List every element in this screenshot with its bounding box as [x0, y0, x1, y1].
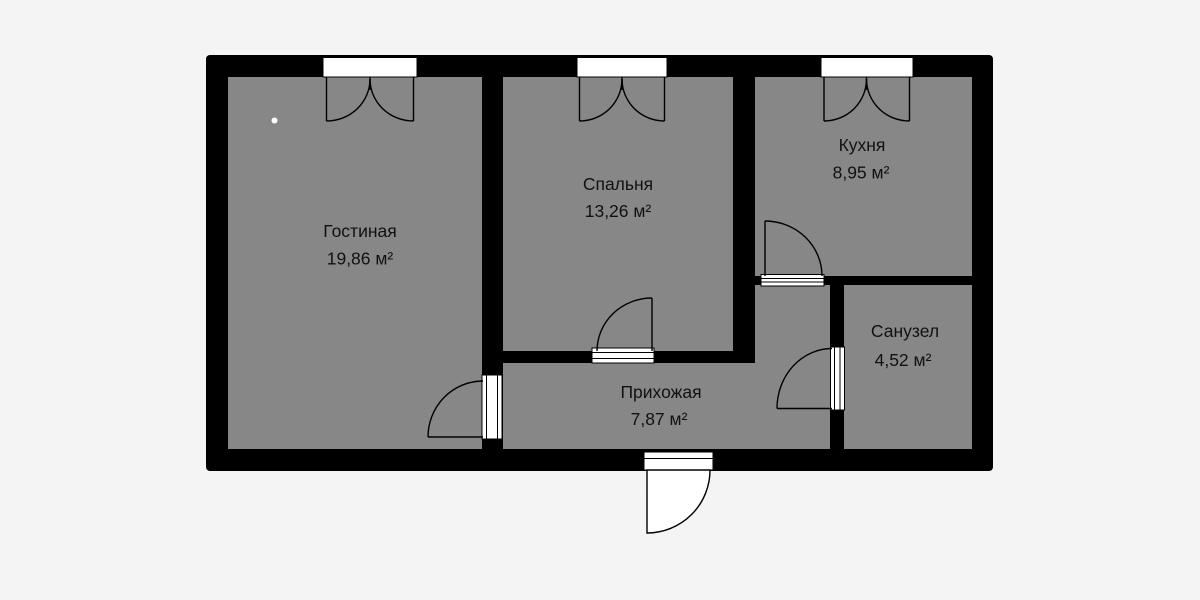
floor-plan-canvas: Гостиная 19,86 м² Спальня 13,26 м² Кухня… [0, 0, 1200, 600]
living-room-name: Гостиная [323, 221, 396, 241]
plan-marker-dot [272, 118, 278, 124]
bedroom-name: Спальня [583, 174, 653, 194]
doorway-kitchen [761, 275, 824, 287]
hallway-area: 7,87 м² [631, 409, 688, 429]
doorway-bedroom [592, 348, 654, 363]
bathroom-name: Санузел [871, 321, 939, 341]
doorway-living-room [482, 375, 502, 439]
kitchen-name: Кухня [839, 135, 886, 155]
living-room-area: 19,86 м² [327, 249, 394, 269]
doorway-bathroom [831, 347, 845, 410]
bedroom-area: 13,26 м² [585, 201, 652, 221]
floor-plan: Гостиная 19,86 м² Спальня 13,26 м² Кухня… [0, 0, 1200, 600]
bathroom-area: 4,52 м² [875, 350, 932, 370]
kitchen-area: 8,95 м² [833, 163, 890, 183]
doorway-entrance [644, 452, 713, 470]
hallway-name: Прихожая [620, 382, 701, 402]
wall-bedroom-kitchen [733, 77, 755, 363]
